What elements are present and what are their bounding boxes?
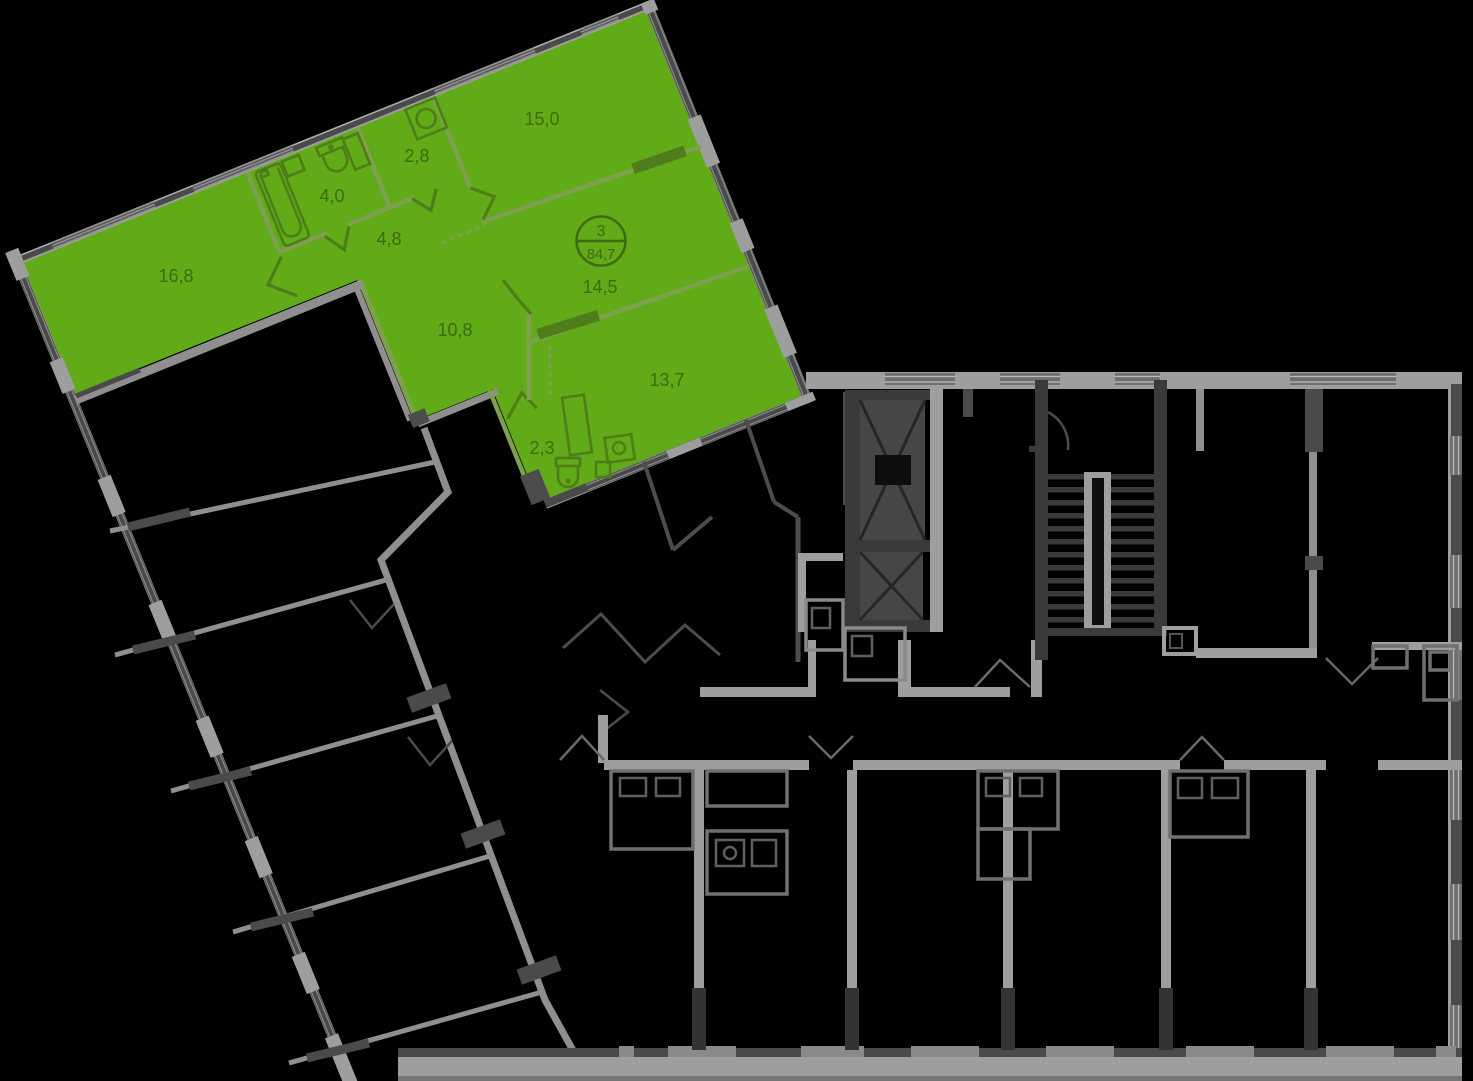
svg-text:10,8: 10,8 [437,320,472,340]
svg-text:14,5: 14,5 [582,277,617,297]
svg-text:4,8: 4,8 [376,229,401,249]
svg-text:16,8: 16,8 [158,266,193,286]
svg-text:13,7: 13,7 [649,370,684,390]
svg-text:4,0: 4,0 [319,186,344,206]
svg-text:84,7: 84,7 [587,247,615,263]
svg-text:2,8: 2,8 [404,146,429,166]
svg-text:15,0: 15,0 [524,109,559,129]
svg-text:3: 3 [597,223,606,240]
svg-text:2,3: 2,3 [529,438,554,458]
